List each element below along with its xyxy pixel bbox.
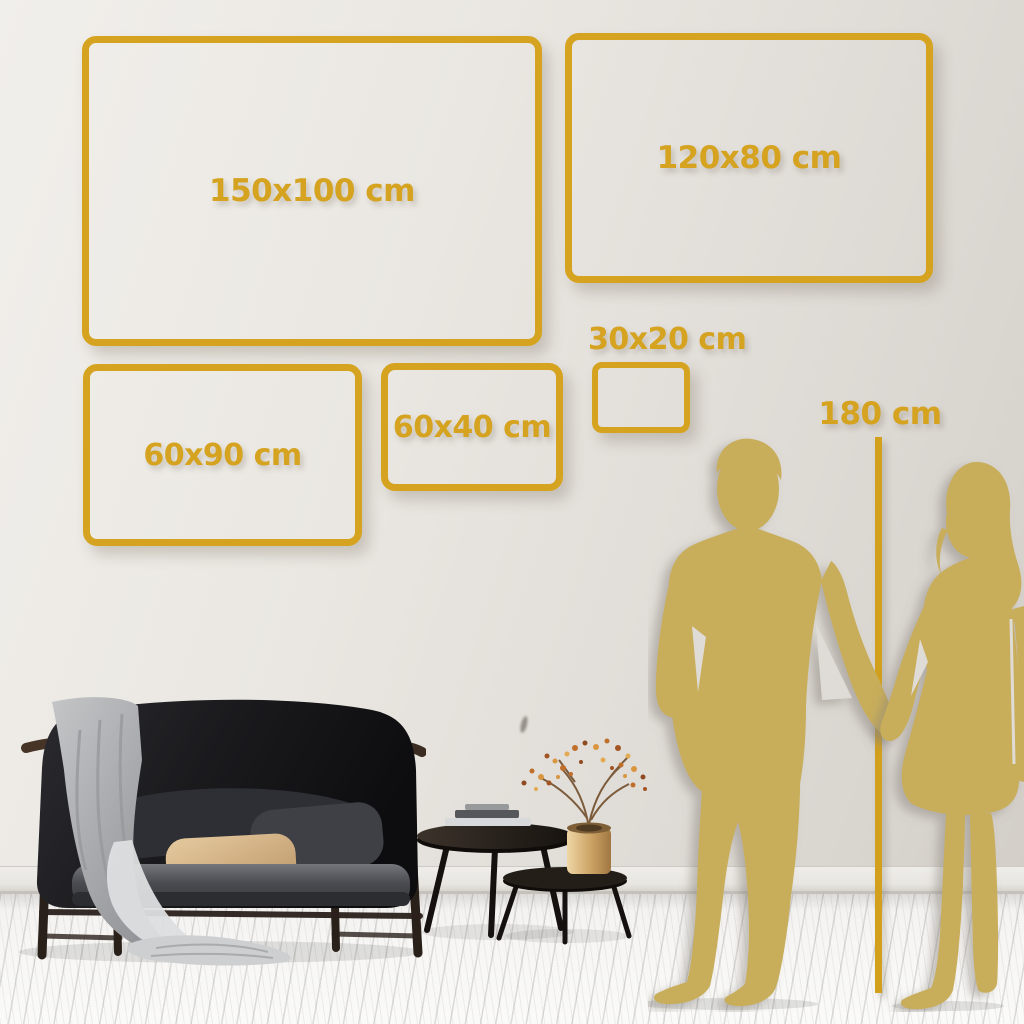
size-label-150x100: 150x100 cm (209, 173, 415, 209)
size-guide-scene: 150x100 cm 120x80 cm 60x90 cm 60x40 cm 3… (0, 0, 1024, 1024)
couple-silhouette (648, 434, 1024, 1012)
man-legs (654, 764, 800, 1006)
vase-mouth-inner (576, 825, 602, 832)
woman-silhouette (880, 462, 1024, 1009)
woman-leg-back (970, 813, 998, 993)
big-table-top (417, 823, 573, 849)
vase-body (567, 828, 611, 874)
size-frame-120x80: 120x80 cm (565, 33, 933, 283)
size-frame-60x40: 60x40 cm (381, 363, 563, 491)
size-label-30x20: 30x20 cm (588, 322, 746, 357)
man-right-arm (821, 561, 895, 734)
size-label-120x80: 120x80 cm (657, 140, 842, 176)
size-frame-30x20 (592, 362, 690, 433)
man-torso (667, 525, 822, 794)
height-label: 180 cm (818, 396, 942, 432)
plant-berries (522, 739, 648, 792)
coffee-tables-illustration (415, 732, 665, 947)
size-frame-150x100: 150x100 cm (82, 36, 542, 346)
sofa-illustration (16, 690, 426, 968)
woman-hair-wisp (936, 528, 948, 574)
man-silhouette (654, 439, 895, 1007)
plant-branches (541, 756, 629, 828)
size-frame-60x90: 60x90 cm (83, 364, 362, 546)
woman-torso-dress (902, 555, 1020, 815)
books (445, 804, 531, 826)
woman-leg (901, 814, 965, 1009)
size-label-60x90: 60x90 cm (143, 438, 301, 473)
size-label-60x40: 60x40 cm (393, 410, 551, 445)
